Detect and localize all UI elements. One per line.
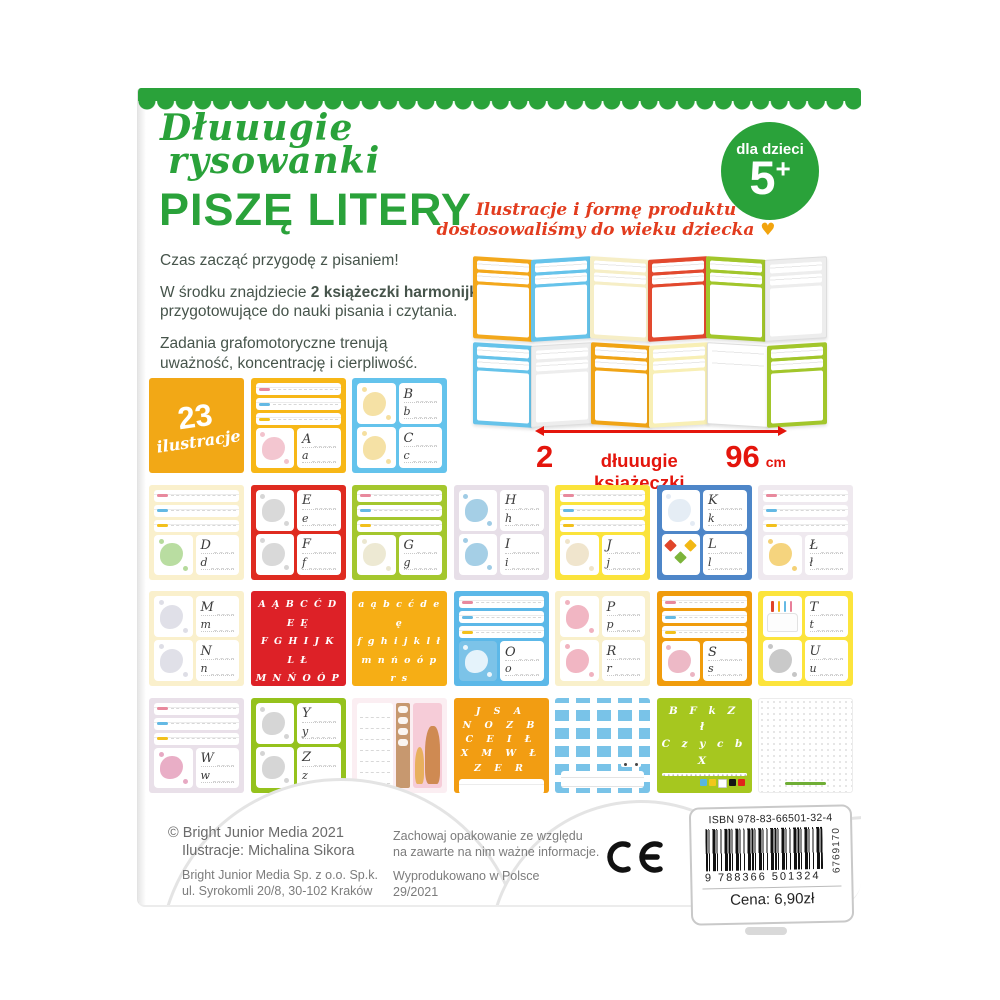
decoration [477, 272, 529, 284]
decoration [770, 261, 822, 273]
decoration [171, 510, 236, 511]
squiggle-mark [157, 509, 168, 512]
practice-letter: y [302, 726, 308, 738]
practice-letter: W [201, 752, 214, 766]
doodle-dot [284, 459, 289, 464]
decoration [360, 729, 390, 740]
grid-cell-page: Jj [555, 485, 650, 580]
kite-shape [664, 539, 677, 552]
decoration [577, 510, 642, 511]
decoration [595, 358, 647, 370]
doodle-blob [566, 649, 589, 673]
decoration: B [404, 388, 437, 403]
doodle-dot [565, 600, 570, 605]
writing-stripe [662, 611, 747, 623]
decoration [477, 260, 529, 272]
decoration: s [708, 663, 741, 676]
scattered-letters: J S A N O Z B C E I Ł X M W Ł Z E R [459, 705, 544, 776]
illustration-box [256, 747, 295, 788]
decoration [652, 260, 704, 272]
page-row [357, 703, 442, 788]
decoration [721, 508, 742, 509]
decoration [519, 508, 538, 509]
series-title-line2: rysowanki [168, 145, 380, 178]
squiggle-mark [665, 601, 676, 604]
decoration [613, 568, 640, 569]
squiggle-mark [563, 494, 574, 497]
decoration: o [505, 663, 538, 676]
decoration [374, 495, 439, 496]
decoration [679, 617, 744, 618]
decoration [679, 602, 744, 603]
decoration [214, 552, 234, 553]
copyright-line: © Bright Junior Media 2021 [168, 824, 378, 842]
doodle-dot [159, 600, 164, 605]
decoration: N [201, 645, 234, 660]
company-address: Bright Junior Media Sp. z o.o. Sp.k. ul.… [182, 868, 378, 899]
doodle-dot [768, 644, 773, 649]
practice-letter: a [302, 450, 309, 462]
decoration: p [607, 619, 640, 632]
letter-practice-box: Ww [196, 748, 239, 788]
illustration-box [459, 641, 498, 681]
doodle-dot [666, 645, 671, 650]
doodle-dot [463, 538, 468, 543]
grid-cell-page: Ww [149, 698, 244, 793]
writing-stripe [763, 520, 848, 532]
squiggle-mark [563, 524, 574, 527]
decoration [519, 659, 539, 660]
doodle-dot [386, 566, 391, 571]
grid-cell-page: Łł [758, 485, 853, 580]
decoration [217, 765, 234, 766]
letter-practice-box: Gg [399, 535, 442, 575]
sticker-shadow [745, 927, 787, 935]
doodle-dot [260, 751, 265, 756]
decoration [577, 525, 642, 526]
decoration [360, 740, 390, 751]
decoration [594, 260, 646, 272]
decoration: Y [302, 707, 335, 722]
writing-stripe [763, 490, 848, 502]
letter-practice-box: Aa [297, 428, 340, 468]
decoration [215, 658, 234, 659]
page-row: Bb [357, 383, 442, 424]
decoration [717, 674, 742, 675]
letter-practice-box: Ff [297, 534, 340, 575]
doodle-dot [260, 538, 265, 543]
page-row: Oo [459, 641, 544, 681]
doodle-dot [487, 521, 492, 526]
decoration [273, 419, 338, 420]
alphabet-text: a ą b c ć d e ę f g h i j k l ł m n ń o … [357, 596, 442, 686]
decoration: I [505, 538, 538, 553]
decoration: j [607, 557, 640, 570]
decoration [615, 552, 640, 553]
isbn-text: ISBN 978-83-66501-32-4 [697, 811, 844, 826]
decoration: M [201, 601, 234, 616]
decoration [374, 525, 439, 526]
doodle-dot [589, 628, 594, 633]
heart-icon: ♥ [760, 220, 775, 240]
doodle-dot [183, 779, 188, 784]
decoration [595, 346, 647, 358]
grid-cell-empty [758, 378, 853, 473]
grid-cell-hidden: B F k Z ł C z y c b X [657, 698, 752, 793]
doodle-dot [565, 539, 570, 544]
doodle-blob [262, 543, 285, 567]
grid-cell-page: Aa [251, 378, 346, 473]
page-row: Jj [560, 535, 645, 575]
squiggle-mark [766, 494, 777, 497]
decoration [171, 708, 236, 709]
llama-illustration [413, 703, 442, 788]
accordion-panel [473, 256, 533, 342]
page-row: Aa [256, 428, 341, 468]
decoration: K [708, 494, 741, 509]
decoration: b [404, 406, 437, 419]
writing-stripe [154, 718, 239, 730]
writing-stripe [256, 398, 341, 410]
grid-cell-page: KkLl [657, 485, 752, 580]
doodle-dot [487, 672, 492, 677]
description-p1: Czas zacząć przygodę z pisaniem! [160, 251, 492, 271]
practice-letter: o [505, 663, 512, 675]
doodle-blob [566, 605, 589, 629]
squiggle-mark [259, 403, 270, 406]
kite-shape [684, 539, 697, 552]
page-row: Cc [357, 427, 442, 468]
decoration [211, 568, 234, 569]
decoration [513, 552, 538, 553]
kite-shape [674, 551, 687, 564]
decoration [535, 260, 587, 272]
color-key-square [738, 779, 745, 786]
age-badge-number: 5+ [749, 154, 790, 201]
writing-stripe [763, 505, 848, 517]
practice-letter: k [708, 513, 715, 525]
practice-letter: F [302, 538, 311, 552]
doodle-blob [769, 649, 792, 673]
accordion-panel [765, 256, 827, 342]
decoration [171, 723, 236, 724]
letter-practice-box: Yy [297, 703, 340, 744]
letter-practice-box: Nn [196, 640, 239, 681]
doodle-dot [284, 778, 289, 783]
grid-cell-page: TtUu [758, 591, 853, 686]
doodle-blob [160, 605, 183, 629]
price-text: Cena: 6,90zł [699, 889, 846, 909]
grid-cell-empty [454, 378, 549, 473]
decoration [312, 524, 336, 525]
decoration [652, 272, 704, 284]
grid-cell-scatter: J S A N O Z B C E I Ł X M W Ł Z E R [454, 698, 549, 793]
grid-cell-page: Oo [454, 591, 549, 686]
squiggle-mark [157, 707, 168, 710]
doodle-dot [260, 432, 265, 437]
color-key-square [729, 779, 736, 786]
decoration: W [201, 752, 234, 767]
word-pill [398, 739, 408, 746]
practice-letter: J [607, 539, 612, 553]
writing-box [459, 779, 544, 793]
doodle-dot [690, 521, 695, 526]
practice-letter: r [607, 663, 612, 675]
letter-practice-box: Ll [703, 534, 746, 575]
decoration [171, 495, 236, 496]
decoration [679, 632, 744, 633]
decoration [577, 495, 642, 496]
decoration [477, 346, 529, 358]
doodle-blob [363, 392, 386, 416]
grid-cell-badge23: 23ilustracje [149, 378, 244, 473]
book-cover: Dłuuugie rysowanki PISZĘ LITERY dla dzie… [137, 88, 861, 907]
decoration [314, 721, 336, 722]
decoration [710, 284, 762, 337]
decoration [314, 446, 335, 447]
decoration: O [505, 646, 538, 661]
doodle-dot [487, 565, 492, 570]
doodle-dot [589, 566, 594, 571]
doodle-dot [362, 431, 367, 436]
doodle-dot [159, 752, 164, 757]
squiggle-mark [259, 418, 270, 421]
decoration [712, 359, 764, 371]
illustration-box [154, 596, 193, 637]
decoration [535, 272, 587, 284]
decoration: a [302, 450, 335, 463]
grid-cell-page: Ss [657, 591, 752, 686]
page-row: Ww [154, 748, 239, 788]
decoration: f [302, 557, 335, 570]
practice-letter: L [708, 538, 717, 552]
letter-practice-box: Rr [602, 640, 645, 681]
doodle-blob [262, 499, 285, 523]
page-row: Kk [662, 490, 747, 531]
writing-stripe [154, 490, 239, 502]
doodle-dot [565, 644, 570, 649]
hidden-picture-box [662, 773, 747, 776]
practice-letter: A [302, 433, 311, 447]
doodle-dot [284, 565, 289, 570]
hidden-letters-text: B F k Z ł C z y c b X [662, 703, 747, 770]
accordion-panel [706, 256, 766, 342]
sticker-divider [702, 886, 841, 890]
practice-letter: n [201, 663, 208, 675]
doodle-dot [183, 672, 188, 677]
squiggle-mark [766, 524, 777, 527]
decoration [477, 284, 529, 337]
decoration [414, 568, 437, 569]
practice-letter: s [708, 663, 714, 675]
decoration [515, 674, 539, 675]
decoration [652, 284, 704, 337]
practice-letter: B [404, 388, 414, 402]
decoration [360, 751, 390, 762]
decoration [715, 568, 742, 569]
squiggle-mark [157, 494, 168, 497]
doodle-blob [668, 499, 691, 523]
squiggle-mark [665, 631, 676, 634]
decoration: P [607, 601, 640, 616]
practice-letter: K [708, 494, 718, 508]
scallop-border [138, 88, 861, 101]
decoration [619, 658, 640, 659]
decoration: w [201, 770, 234, 783]
decoration: m [201, 619, 234, 632]
decoration [476, 602, 541, 603]
letter-practice-box: Uu [805, 640, 848, 681]
page-row: Łł [763, 535, 848, 575]
candle-shape [784, 601, 787, 612]
squiggle-mark [360, 494, 371, 497]
decoration [273, 389, 338, 390]
page-row: Ff [256, 534, 341, 575]
word-pill [398, 717, 408, 724]
decoration [315, 508, 336, 509]
page-row: Ss [662, 641, 747, 681]
decoration [360, 707, 390, 718]
letter-practice-box: Mm [196, 596, 239, 637]
illustration-box [256, 428, 295, 468]
doodle-dot [159, 644, 164, 649]
practice-letter: h [505, 513, 512, 525]
doodle-blob [465, 543, 488, 567]
llama-shape [415, 747, 424, 784]
description: Czas zacząć przygodę z pisaniem! W środk… [160, 251, 492, 385]
practice-letter: N [201, 645, 212, 659]
squiggle-mark [462, 601, 473, 604]
decoration [314, 552, 335, 553]
description-p2: W środku znajdziecie 2 książeczki harmon… [160, 283, 492, 322]
illustration-box [763, 596, 802, 637]
page-title: PISZĘ LITERY [159, 184, 472, 236]
decoration: J [607, 539, 640, 554]
doodle-dot [386, 459, 391, 464]
doodle-dot [159, 539, 164, 544]
practice-letter: b [404, 406, 411, 418]
page-row: Ee [256, 490, 341, 531]
doodle-blob [160, 649, 183, 673]
decoration [720, 552, 742, 553]
accordion-row [474, 258, 826, 340]
doodle-dot [792, 672, 797, 677]
doodle-dot [260, 494, 265, 499]
page-row: Uu [763, 640, 848, 681]
decoration [821, 614, 843, 615]
practice-letter: l [708, 557, 712, 569]
decoration [710, 272, 762, 284]
decoration [594, 272, 646, 284]
grid-cell-page: EeFf [251, 485, 346, 580]
decoration [710, 260, 762, 272]
grid-cell-alpha: a ą b c ć d e ę f g h i j k l ł m n ń o … [352, 591, 447, 686]
illustrations-count-badge: 23ilustracje [151, 395, 242, 456]
color-key-square [700, 779, 707, 786]
decoration [417, 552, 437, 553]
decoration: L [708, 538, 741, 553]
book-back-cover-photo: Dłuuugie rysowanki PISZĘ LITERY dla dzie… [0, 0, 1000, 1000]
description-p3: Zadania grafomotoryczne trenująuważność,… [160, 334, 492, 373]
doodle-dot [386, 415, 391, 420]
decoration [515, 524, 538, 525]
practice-letter: C [404, 432, 414, 446]
decoration [720, 659, 742, 660]
word-pill [398, 728, 408, 735]
website-link: www.czuczu.pl [182, 906, 378, 908]
decoration [414, 417, 437, 418]
decoration [615, 674, 640, 675]
writing-stripe [560, 520, 645, 532]
practice-letter: U [810, 645, 821, 659]
decoration [771, 346, 823, 358]
accordion-panel [531, 256, 591, 342]
letter-practice-box: Ss [703, 641, 746, 681]
decoration [273, 404, 338, 405]
tagline-line1: Ilustracje i formę produktu [476, 200, 737, 220]
practice-letter: m [201, 619, 211, 631]
page-row: Ii [459, 534, 544, 575]
illustration-box [357, 383, 396, 424]
doodle-dot [690, 672, 695, 677]
practice-letter: G [404, 539, 414, 553]
letter-practice-box: Pp [602, 596, 645, 637]
word-strip [396, 703, 410, 788]
decoration [360, 762, 390, 773]
letter-practice-box: Hh [500, 490, 543, 531]
page-row: Gg [357, 535, 442, 575]
doodle-blob [160, 543, 183, 566]
letter-practice-box: Dd [196, 535, 239, 575]
page-row: Ll [662, 534, 747, 575]
doodle-dot [260, 707, 265, 712]
decoration: E [302, 494, 335, 509]
practice-letter: T [810, 601, 819, 615]
grid-cell-page: Dd [149, 485, 244, 580]
decoration: k [708, 513, 741, 526]
car-shape [621, 757, 641, 767]
illustration-box [459, 534, 498, 575]
doodle-dot [362, 387, 367, 392]
doodle-blob [262, 712, 285, 736]
letter-practice-box: Kk [703, 490, 746, 531]
accordion-panel [590, 256, 650, 342]
practice-letter: P [607, 601, 616, 615]
color-key-square [718, 779, 727, 788]
doodle-blob [668, 650, 691, 673]
letter-practice-box: Oo [500, 641, 543, 681]
grid-cell-maze [555, 698, 650, 793]
decoration [413, 461, 437, 462]
writing-stripe [154, 520, 239, 532]
decoration: n [201, 663, 234, 676]
decoration: l [708, 557, 741, 570]
letter-practice-box: Ee [297, 490, 340, 531]
decoration: h [505, 513, 538, 526]
decoration: S [708, 646, 741, 661]
practice-letter: E [302, 494, 312, 508]
letter-practice-box: Bb [399, 383, 442, 424]
writing-stripe [154, 505, 239, 517]
decoration [536, 359, 588, 371]
doodle-dot [589, 672, 594, 677]
practice-letter: H [505, 494, 516, 508]
decoration [217, 614, 234, 615]
illustration-box [662, 641, 701, 681]
writing-stripe [662, 626, 747, 638]
side-number: 6769170 [831, 827, 843, 873]
page-row: Rr [560, 640, 645, 681]
